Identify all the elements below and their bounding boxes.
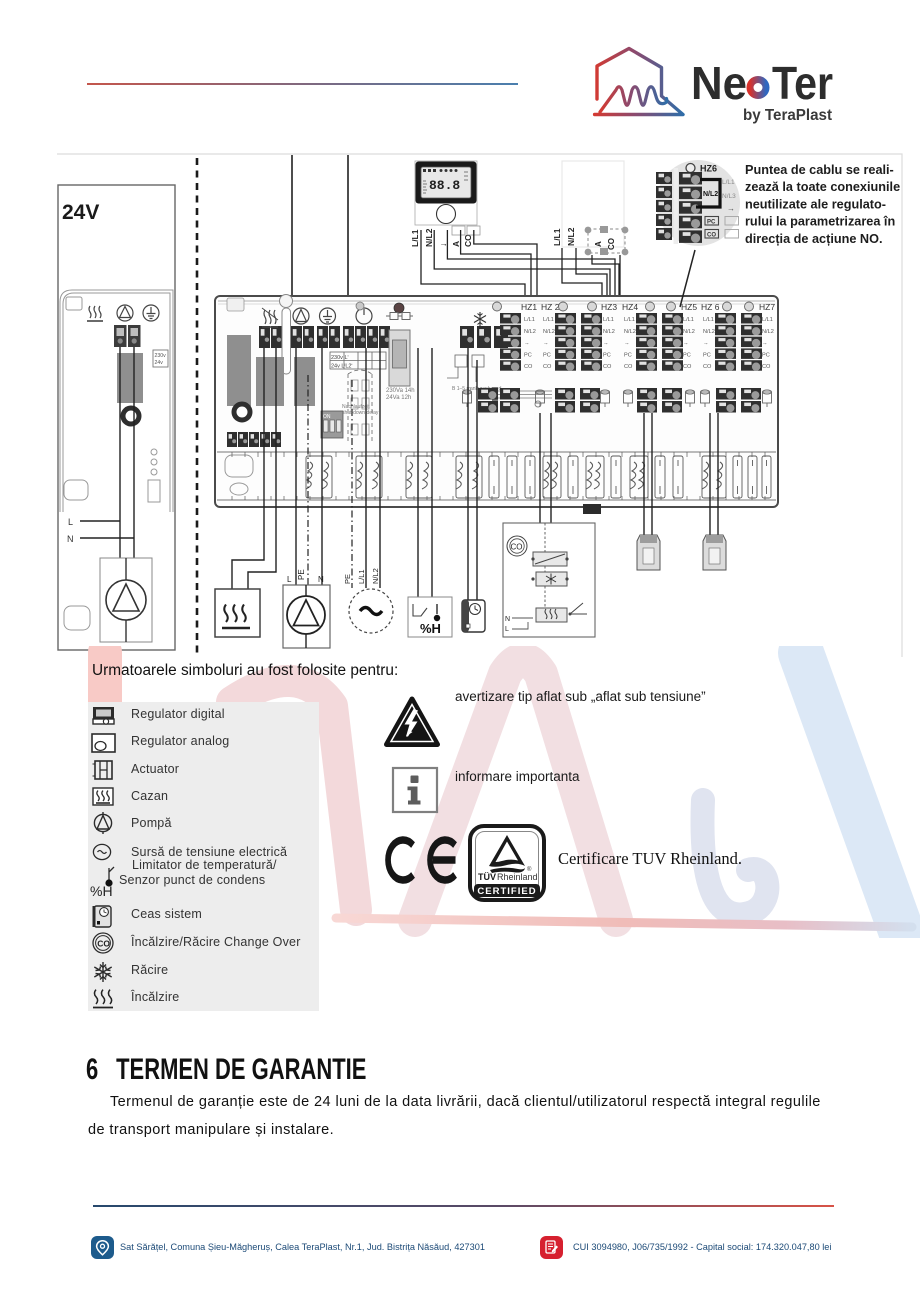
svg-text:N/L2: N/L2 — [624, 329, 636, 335]
svg-text:CO: CO — [607, 238, 616, 250]
svg-text:%H: %H — [420, 621, 441, 636]
svg-text:PC: PC — [603, 352, 611, 358]
svg-text:→: → — [762, 341, 768, 347]
svg-text:→: → — [624, 341, 630, 347]
svg-text:N: N — [67, 534, 74, 544]
svg-text:HZ5: HZ5 — [681, 302, 697, 312]
svg-text:24v: 24v — [155, 360, 164, 366]
svg-text:L/L1: L/L1 — [624, 317, 635, 323]
svg-text:HZ 2: HZ 2 — [541, 302, 560, 312]
svg-text:direcția de acțiune NO.: direcția de acțiune NO. — [745, 232, 883, 246]
svg-text:PC: PC — [703, 352, 711, 358]
svg-text:A: A — [594, 241, 603, 247]
svg-text:L/L1: L/L1 — [524, 317, 535, 323]
svg-text:230v Lʹ: 230v Lʹ — [331, 354, 349, 361]
svg-text:→: → — [703, 341, 709, 347]
svg-text:HZ6: HZ6 — [700, 164, 717, 174]
svg-text:PE: PE — [297, 569, 306, 580]
svg-text:L/L1: L/L1 — [410, 229, 420, 247]
svg-text:HZ3: HZ3 — [601, 302, 617, 312]
svg-text:L/L1: L/L1 — [552, 228, 562, 246]
svg-text:L/L1: L/L1 — [683, 317, 694, 323]
svg-text:→: → — [524, 341, 530, 347]
svg-text:N/L3: N/L3 — [722, 193, 736, 200]
svg-text:HZ4: HZ4 — [622, 302, 638, 312]
svg-text:L/L1: L/L1 — [543, 317, 554, 323]
svg-text:CO: CO — [603, 364, 612, 370]
svg-text:L: L — [505, 626, 509, 633]
svg-text:CO: CO — [543, 364, 552, 370]
svg-text:shut-down delay: shut-down delay — [342, 410, 379, 416]
svg-text:HZ 6: HZ 6 — [701, 302, 720, 312]
svg-text:PC: PC — [683, 352, 691, 358]
svg-text:CO: CO — [624, 364, 633, 370]
svg-text:PC: PC — [762, 352, 770, 358]
svg-text:N/L2: N/L2 — [543, 329, 555, 335]
svg-text:L: L — [287, 575, 292, 584]
svg-text:CO: CO — [762, 364, 771, 370]
svg-text:Rheinland: Rheinland — [497, 872, 538, 882]
svg-text:88.8: 88.8 — [429, 178, 460, 193]
svg-text:PC: PC — [624, 352, 632, 358]
svg-text:N/L2: N/L2 — [762, 329, 774, 335]
svg-text:230Va 14h: 230Va 14h — [386, 388, 415, 394]
svg-text:CO: CO — [683, 364, 692, 370]
svg-text:L/L1: L/L1 — [603, 317, 614, 323]
svg-text:CO: CO — [524, 364, 533, 370]
svg-text:Puntea de cablu se reali-: Puntea de cablu se reali- — [745, 163, 894, 177]
svg-text:N/L2: N/L2 — [524, 329, 536, 335]
svg-text:PC: PC — [524, 352, 532, 358]
svg-text:TÜV: TÜV — [478, 872, 496, 882]
svg-text:N/L2: N/L2 — [683, 329, 695, 335]
svg-text:N/L2: N/L2 — [703, 329, 715, 335]
svg-text:N/L2: N/L2 — [424, 228, 434, 247]
svg-text:230v: 230v — [155, 353, 167, 359]
svg-text:CO: CO — [463, 234, 473, 247]
svg-text:PC: PC — [543, 352, 551, 358]
svg-text:ON: ON — [323, 414, 331, 420]
svg-text:neutilizate ale regulato-: neutilizate ale regulato- — [745, 197, 886, 211]
svg-text:CO: CO — [707, 233, 716, 239]
svg-text:L: L — [68, 517, 73, 527]
svg-text:N/L2: N/L2 — [371, 568, 380, 584]
svg-text:→: → — [543, 341, 549, 347]
svg-text:N/L2: N/L2 — [566, 227, 576, 246]
svg-text:L/L1: L/L1 — [357, 569, 366, 584]
svg-text:L/L1: L/L1 — [722, 179, 735, 186]
svg-text:PC: PC — [707, 220, 716, 226]
svg-text:CO: CO — [97, 939, 110, 949]
svg-text:L/L1: L/L1 — [703, 317, 714, 323]
svg-text:rului la parametrizarea în: rului la parametrizarea în — [745, 215, 895, 229]
svg-text:CO: CO — [511, 543, 523, 552]
svg-text:→: → — [683, 341, 689, 347]
svg-text:zează la toate conexiunile: zează la toate conexiunile — [745, 180, 900, 194]
svg-text:→: → — [727, 204, 735, 213]
svg-text:N: N — [318, 575, 324, 584]
svg-text:CERTIFIED: CERTIFIED — [477, 886, 536, 897]
svg-text:N: N — [505, 616, 510, 623]
svg-text:24Va 12h: 24Va 12h — [386, 395, 411, 401]
svg-text:→: → — [603, 341, 609, 347]
svg-text:L/L1: L/L1 — [762, 317, 773, 323]
svg-text:%H: %H — [90, 883, 113, 899]
svg-text:↓: ↓ — [438, 243, 448, 247]
svg-text:HZ7: HZ7 — [759, 302, 775, 312]
svg-text:N/L2: N/L2 — [703, 191, 718, 198]
svg-text:A: A — [451, 241, 461, 247]
svg-text:N/L2: N/L2 — [603, 329, 615, 335]
svg-text:24V: 24V — [62, 201, 99, 224]
svg-text:®: ® — [527, 866, 532, 873]
svg-text:PE: PE — [343, 574, 352, 584]
svg-text:CO: CO — [703, 364, 712, 370]
svg-text:24v LˡL2ʹ: 24v LˡL2ʹ — [331, 363, 353, 370]
svg-text:HZ1: HZ1 — [521, 302, 537, 312]
